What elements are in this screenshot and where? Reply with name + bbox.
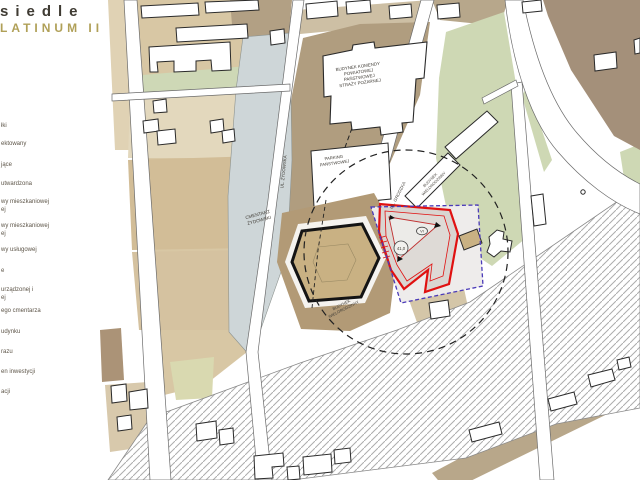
legend-item: razu [1, 349, 13, 356]
legend-item: ej [1, 295, 6, 302]
legend-item: wy usługowej [1, 247, 37, 254]
fire-station-building [323, 42, 427, 135]
legend-item: jące [1, 162, 12, 169]
project-title: siedle [0, 3, 85, 20]
project-subtitle: LATINUM II [0, 21, 103, 35]
site-plan-map: BUDYNEK KOMENDY POWIATOWEJ PAŃSTWOWEJ ST… [0, 0, 640, 480]
legend-item: acji [1, 389, 10, 396]
legend-item: ej [1, 207, 6, 214]
legend-item: wy mieszkaniowej [1, 223, 49, 230]
legend-item: łki [1, 123, 7, 130]
site-plan-sheet: BUDYNEK KOMENDY POWIATOWEJ PAŃSTWOWEJ ST… [0, 0, 640, 480]
fire-station-parking [311, 143, 391, 207]
height-marker-text: 41,0 [397, 246, 406, 251]
legend-item: ektowany [1, 141, 26, 148]
storeys-marker-text: VI [420, 229, 424, 234]
legend-item: udynku [1, 329, 20, 336]
legend-item: en inwestycji [1, 369, 35, 376]
legend-item: urządzonej i [1, 287, 33, 294]
legend-item: utwardzona [1, 181, 32, 188]
legend-item: ej [1, 231, 6, 238]
legend-item: e [1, 268, 4, 275]
legend-item: wy mieszkaniowej [1, 199, 49, 206]
legend-item: ego cmentarza [1, 308, 41, 315]
